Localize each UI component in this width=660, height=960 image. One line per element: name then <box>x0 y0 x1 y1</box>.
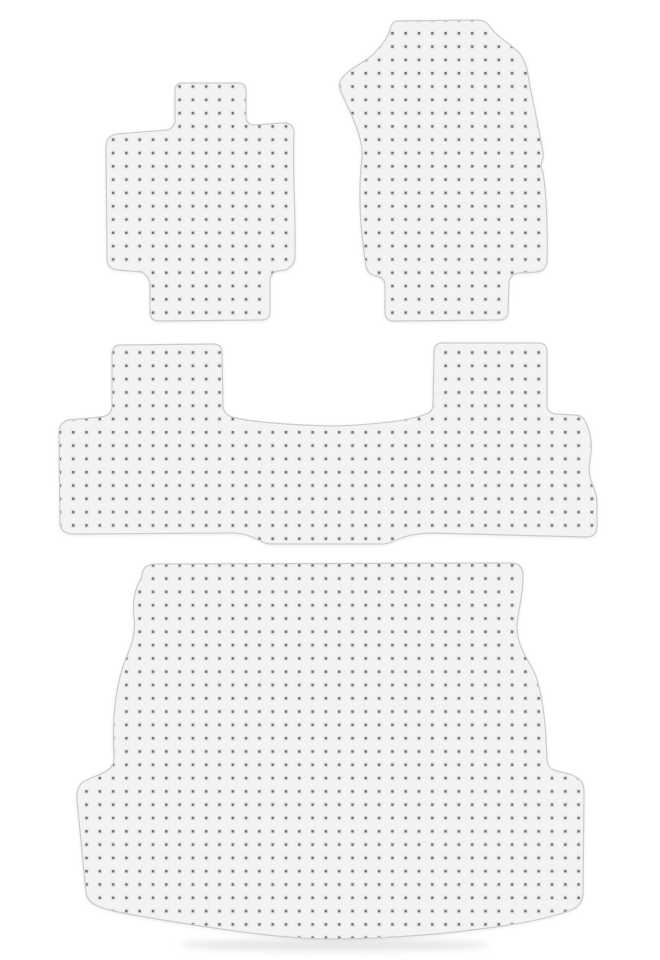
cargo-mat-shadow <box>180 939 490 951</box>
floor-mat-set-illustration: Front floor mat (passenger side) with to… <box>0 0 660 960</box>
cargo-mat: Cargo / trunk mat with flared side wings… <box>77 563 584 939</box>
product-image: Front floor mat (passenger side) with to… <box>0 0 660 960</box>
front-mat-left: Front floor mat (passenger side) with to… <box>106 83 295 321</box>
rear-bench-mat: Rear bench floor mat with two seat tower… <box>59 343 597 544</box>
front-mat-right: Front floor mat (driver side) with point… <box>339 20 547 321</box>
